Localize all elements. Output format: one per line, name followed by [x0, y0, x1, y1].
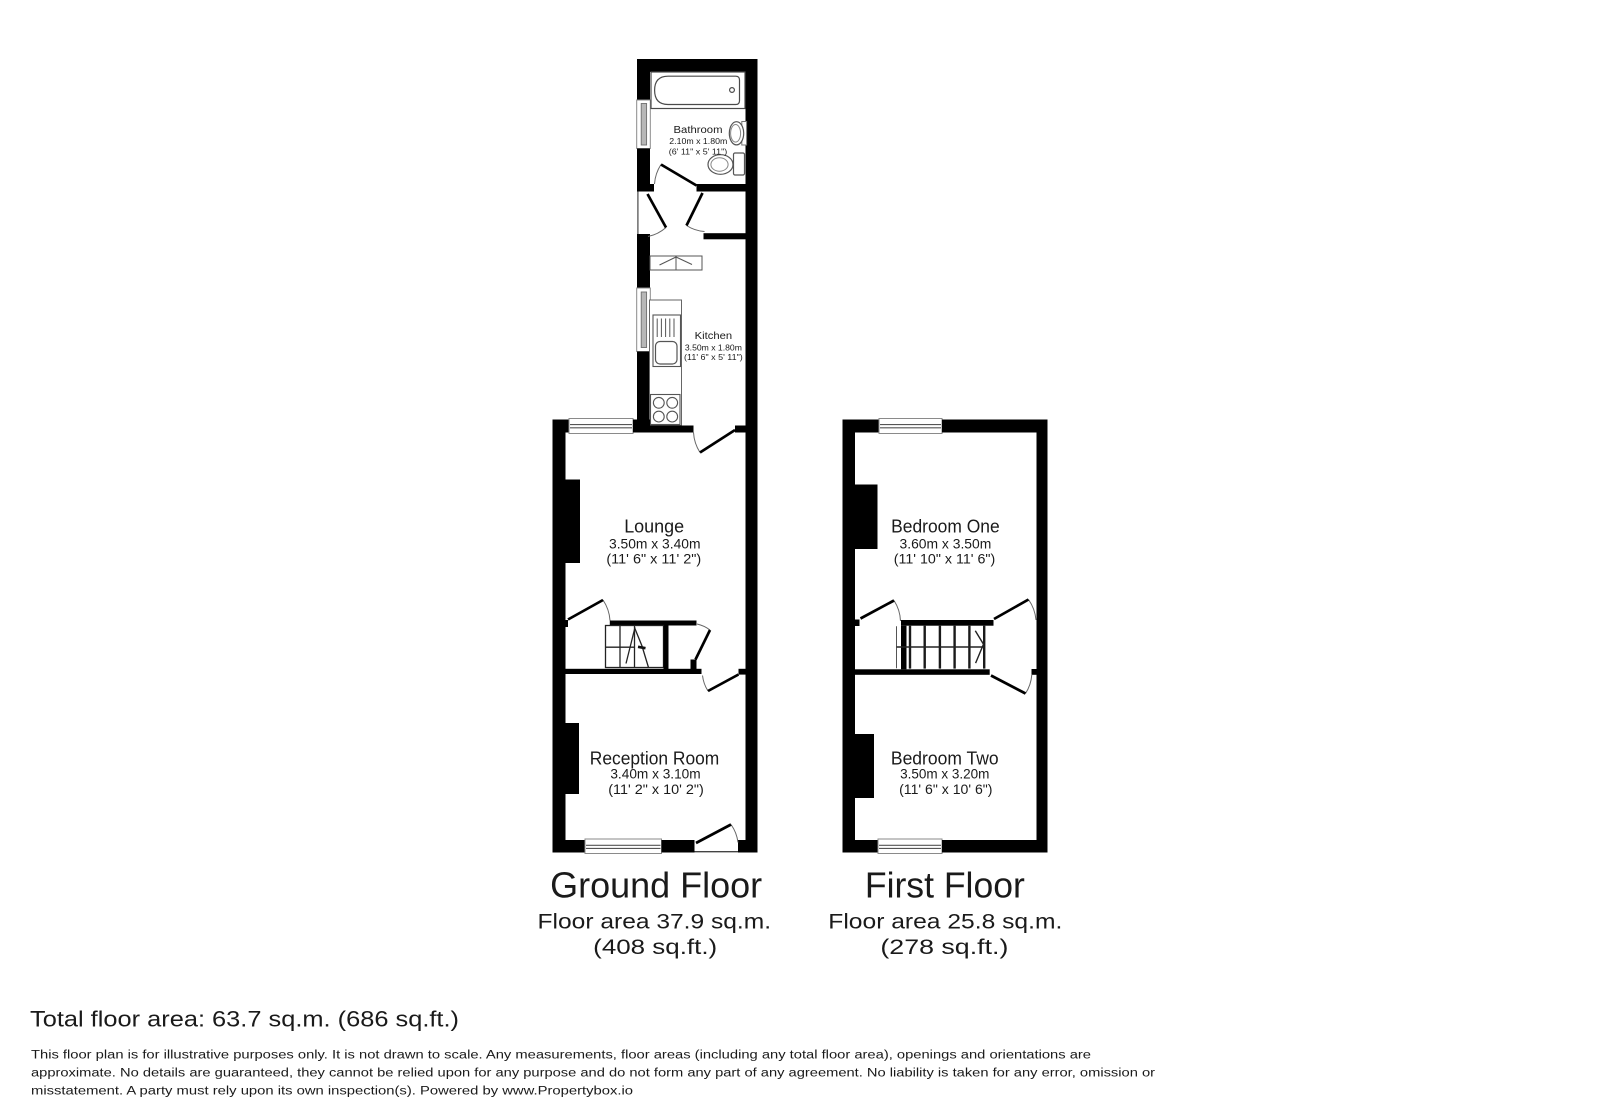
svg-text:Bedroom One: Bedroom One: [891, 517, 1000, 537]
svg-text:3.50m x 3.40m: 3.50m x 3.40m: [609, 536, 701, 551]
svg-text:Floor area 37.9 sq.m.: Floor area 37.9 sq.m.: [538, 910, 772, 933]
svg-text:(11' 10" x 11' 6"): (11' 10" x 11' 6"): [894, 552, 996, 567]
svg-text:3.50m x 3.20m: 3.50m x 3.20m: [900, 766, 989, 781]
svg-text:(278 sq.ft.): (278 sq.ft.): [880, 936, 1008, 959]
svg-text:approximate. No details are gu: approximate. No details are guaranteed, …: [31, 1068, 1155, 1080]
svg-text:Kitchen: Kitchen: [695, 330, 733, 342]
svg-text:Lounge: Lounge: [624, 517, 684, 537]
svg-text:Total floor area: 63.7 sq.m. (: Total floor area: 63.7 sq.m. (686 sq.ft.…: [30, 1007, 459, 1032]
svg-text:3.40m x 3.10m: 3.40m x 3.10m: [610, 766, 700, 781]
svg-text:(6' 11" x 5' 11"): (6' 11" x 5' 11"): [669, 146, 728, 156]
svg-text:Floor area 25.8 sq.m.: Floor area 25.8 sq.m.: [828, 910, 1062, 933]
svg-text:(11' 6" x 5' 11"): (11' 6" x 5' 11"): [684, 352, 743, 362]
svg-text:(11' 2" x 10' 2"): (11' 2" x 10' 2"): [608, 782, 704, 797]
svg-text:Ground Floor: Ground Floor: [550, 865, 762, 906]
svg-text:(408 sq.ft.): (408 sq.ft.): [593, 936, 717, 959]
svg-text:2.10m x 1.80m: 2.10m x 1.80m: [669, 136, 727, 146]
svg-text:Reception Room: Reception Room: [590, 748, 720, 768]
svg-text:3.60m x 3.50m: 3.60m x 3.50m: [900, 536, 992, 551]
svg-text:Bathroom: Bathroom: [674, 125, 723, 136]
svg-text:3.50m x 1.80m: 3.50m x 1.80m: [685, 342, 742, 352]
svg-text:First Floor: First Floor: [865, 865, 1025, 906]
svg-text:Bedroom Two: Bedroom Two: [891, 748, 999, 768]
svg-text:(11' 6" x 10' 6"): (11' 6" x 10' 6"): [899, 782, 992, 797]
svg-text:misstatement. A party must rel: misstatement. A party must rely upon its…: [31, 1086, 633, 1098]
svg-text:(11' 6" x 11' 2"): (11' 6" x 11' 2"): [606, 552, 701, 567]
svg-text:This floor plan is for illustr: This floor plan is for illustrative purp…: [31, 1050, 1091, 1062]
